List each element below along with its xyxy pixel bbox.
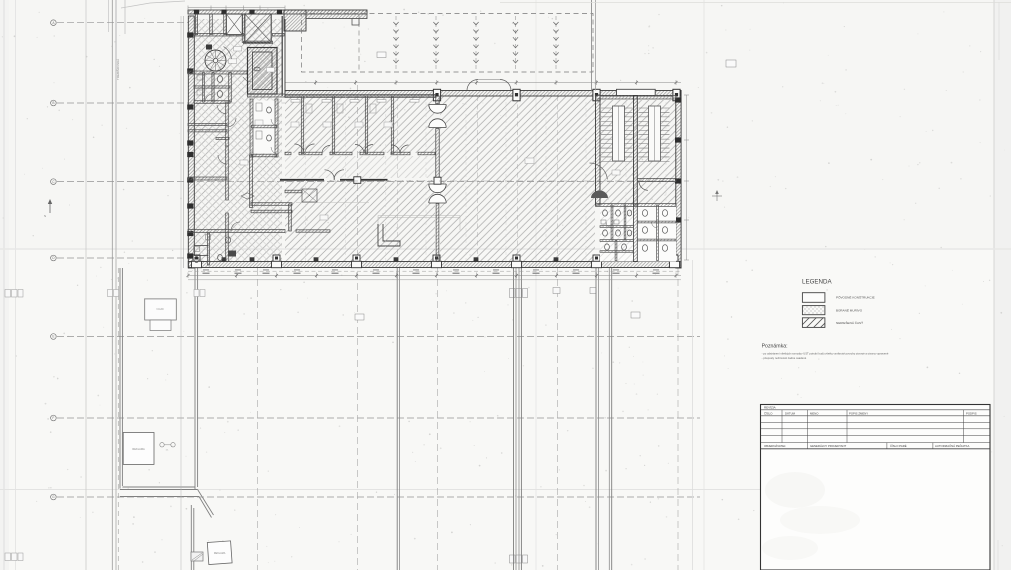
svg-text:REKLAMA: REKLAMA (132, 447, 145, 451)
svg-text:VJAZD: VJAZD (156, 308, 164, 311)
svg-text:NERIEŠENÁ ČASŤ: NERIEŠENÁ ČASŤ (836, 320, 863, 325)
svg-text:B: B (52, 101, 54, 105)
svg-text:DÁTUM: DÁTUM (785, 411, 796, 415)
svg-text:- priepusty nečinnosti riadne: - priepusty nečinnosti riadne osadené (762, 356, 807, 360)
svg-text:REKLAMA: REKLAMA (214, 552, 226, 555)
svg-text:ČÍSLO PARÉ: ČÍSLO PARÉ (890, 443, 907, 448)
svg-text:PODPIS: PODPIS (966, 411, 977, 415)
svg-text:- po odstránení všetkých rozvo: - po odstránení všetkých rozvodov UST po… (762, 352, 889, 356)
svg-text:POPIS ZMENY: POPIS ZMENY (849, 411, 868, 415)
svg-text:ČÍSLO: ČÍSLO (764, 410, 773, 415)
svg-text:MENO: MENO (810, 411, 819, 415)
svg-text:BÚRANÉ MURIVO: BÚRANÉ MURIVO (836, 308, 863, 313)
svg-text:S: S (44, 214, 46, 218)
svg-text:REVÍZIA: REVÍZIA (764, 406, 776, 410)
svg-text:PÔVODNÉ KONŠTRUKCIE: PÔVODNÉ KONŠTRUKCIE (836, 295, 875, 300)
svg-text:E: E (52, 335, 54, 339)
svg-text:OBJEDNÁVATEĽ: OBJEDNÁVATEĽ (764, 444, 786, 448)
svg-text:AUTORIZAČNÁ PEČIATKA: AUTORIZAČNÁ PEČIATKA (935, 443, 970, 448)
svg-text:LEGENDA: LEGENDA (802, 279, 832, 286)
svg-text:F: F (52, 416, 54, 420)
svg-text:Poznámka:: Poznámka: (762, 344, 788, 350)
svg-text:GENERÁLNY PROJEKTANT: GENERÁLNY PROJEKTANT (810, 444, 847, 448)
